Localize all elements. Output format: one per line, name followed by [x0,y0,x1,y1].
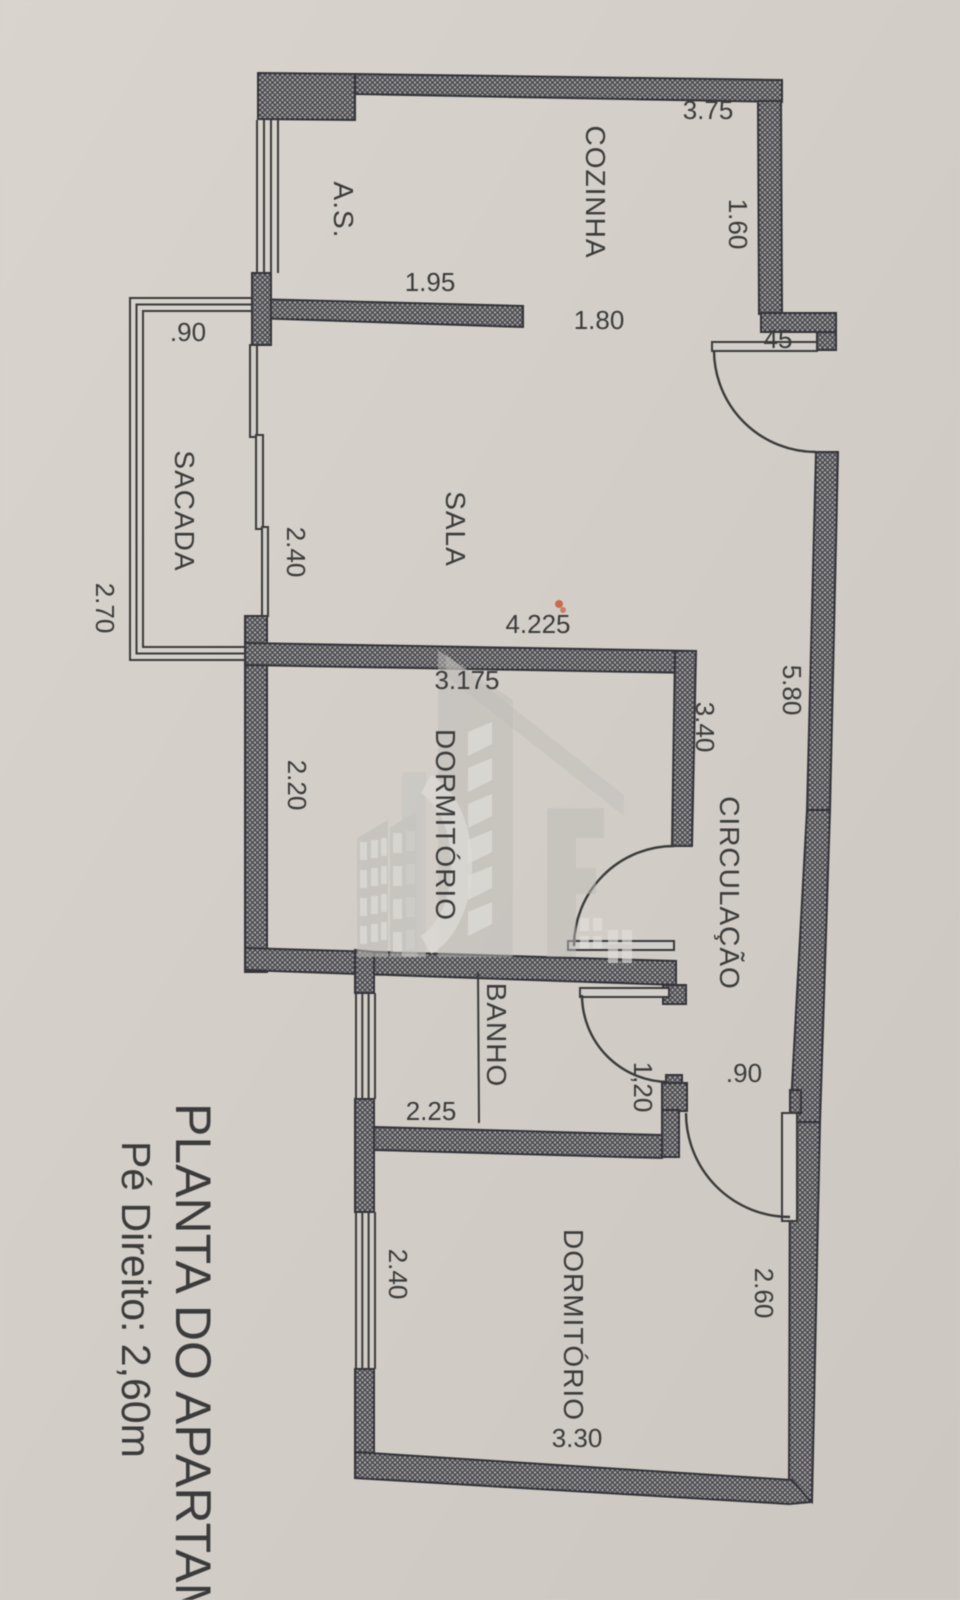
svg-text:Pé Direito: 2,60m: Pé Direito: 2,60m [113,1141,159,1458]
svg-text:3.30: 3.30 [552,1423,603,1453]
svg-text:1.80: 1.80 [574,305,625,335]
svg-text:2.60: 2.60 [749,1268,779,1319]
svg-text:1.95: 1.95 [405,267,456,297]
svg-text:1,20: 1,20 [628,1062,658,1113]
svg-text:COZINHA: COZINHA [580,126,611,259]
svg-text:SACADA: SACADA [169,450,200,571]
svg-text:2.70: 2.70 [90,583,120,634]
svg-text:.90: .90 [170,317,206,347]
svg-text:2.20: 2.20 [282,760,312,811]
svg-text:DORMITÓRIO: DORMITÓRIO [430,729,461,921]
svg-text:DORMITÓRIO: DORMITÓRIO [558,1229,589,1421]
svg-text:CIRCULAÇÃO: CIRCULAÇÃO [714,796,745,990]
svg-text:3.75: 3.75 [683,95,734,125]
svg-text:2.40: 2.40 [383,1249,413,1300]
svg-text:2.40: 2.40 [281,527,311,578]
svg-text:BANHO: BANHO [481,983,512,1088]
svg-text:2.25: 2.25 [406,1096,457,1126]
svg-text:4.225: 4.225 [505,609,570,639]
svg-text:5.80: 5.80 [777,665,807,716]
svg-text:3.40: 3.40 [690,702,720,753]
svg-text:3.175: 3.175 [434,665,499,695]
svg-text:45: 45 [764,324,793,354]
svg-text:.90: .90 [726,1058,762,1088]
svg-text:SALA: SALA [440,491,471,567]
svg-text:A.S.: A.S. [328,182,359,239]
svg-text:PLANTA DO APARTAMENTO: PLANTA DO APARTAMENTO [165,1103,221,1600]
svg-text:1.60: 1.60 [723,199,753,250]
